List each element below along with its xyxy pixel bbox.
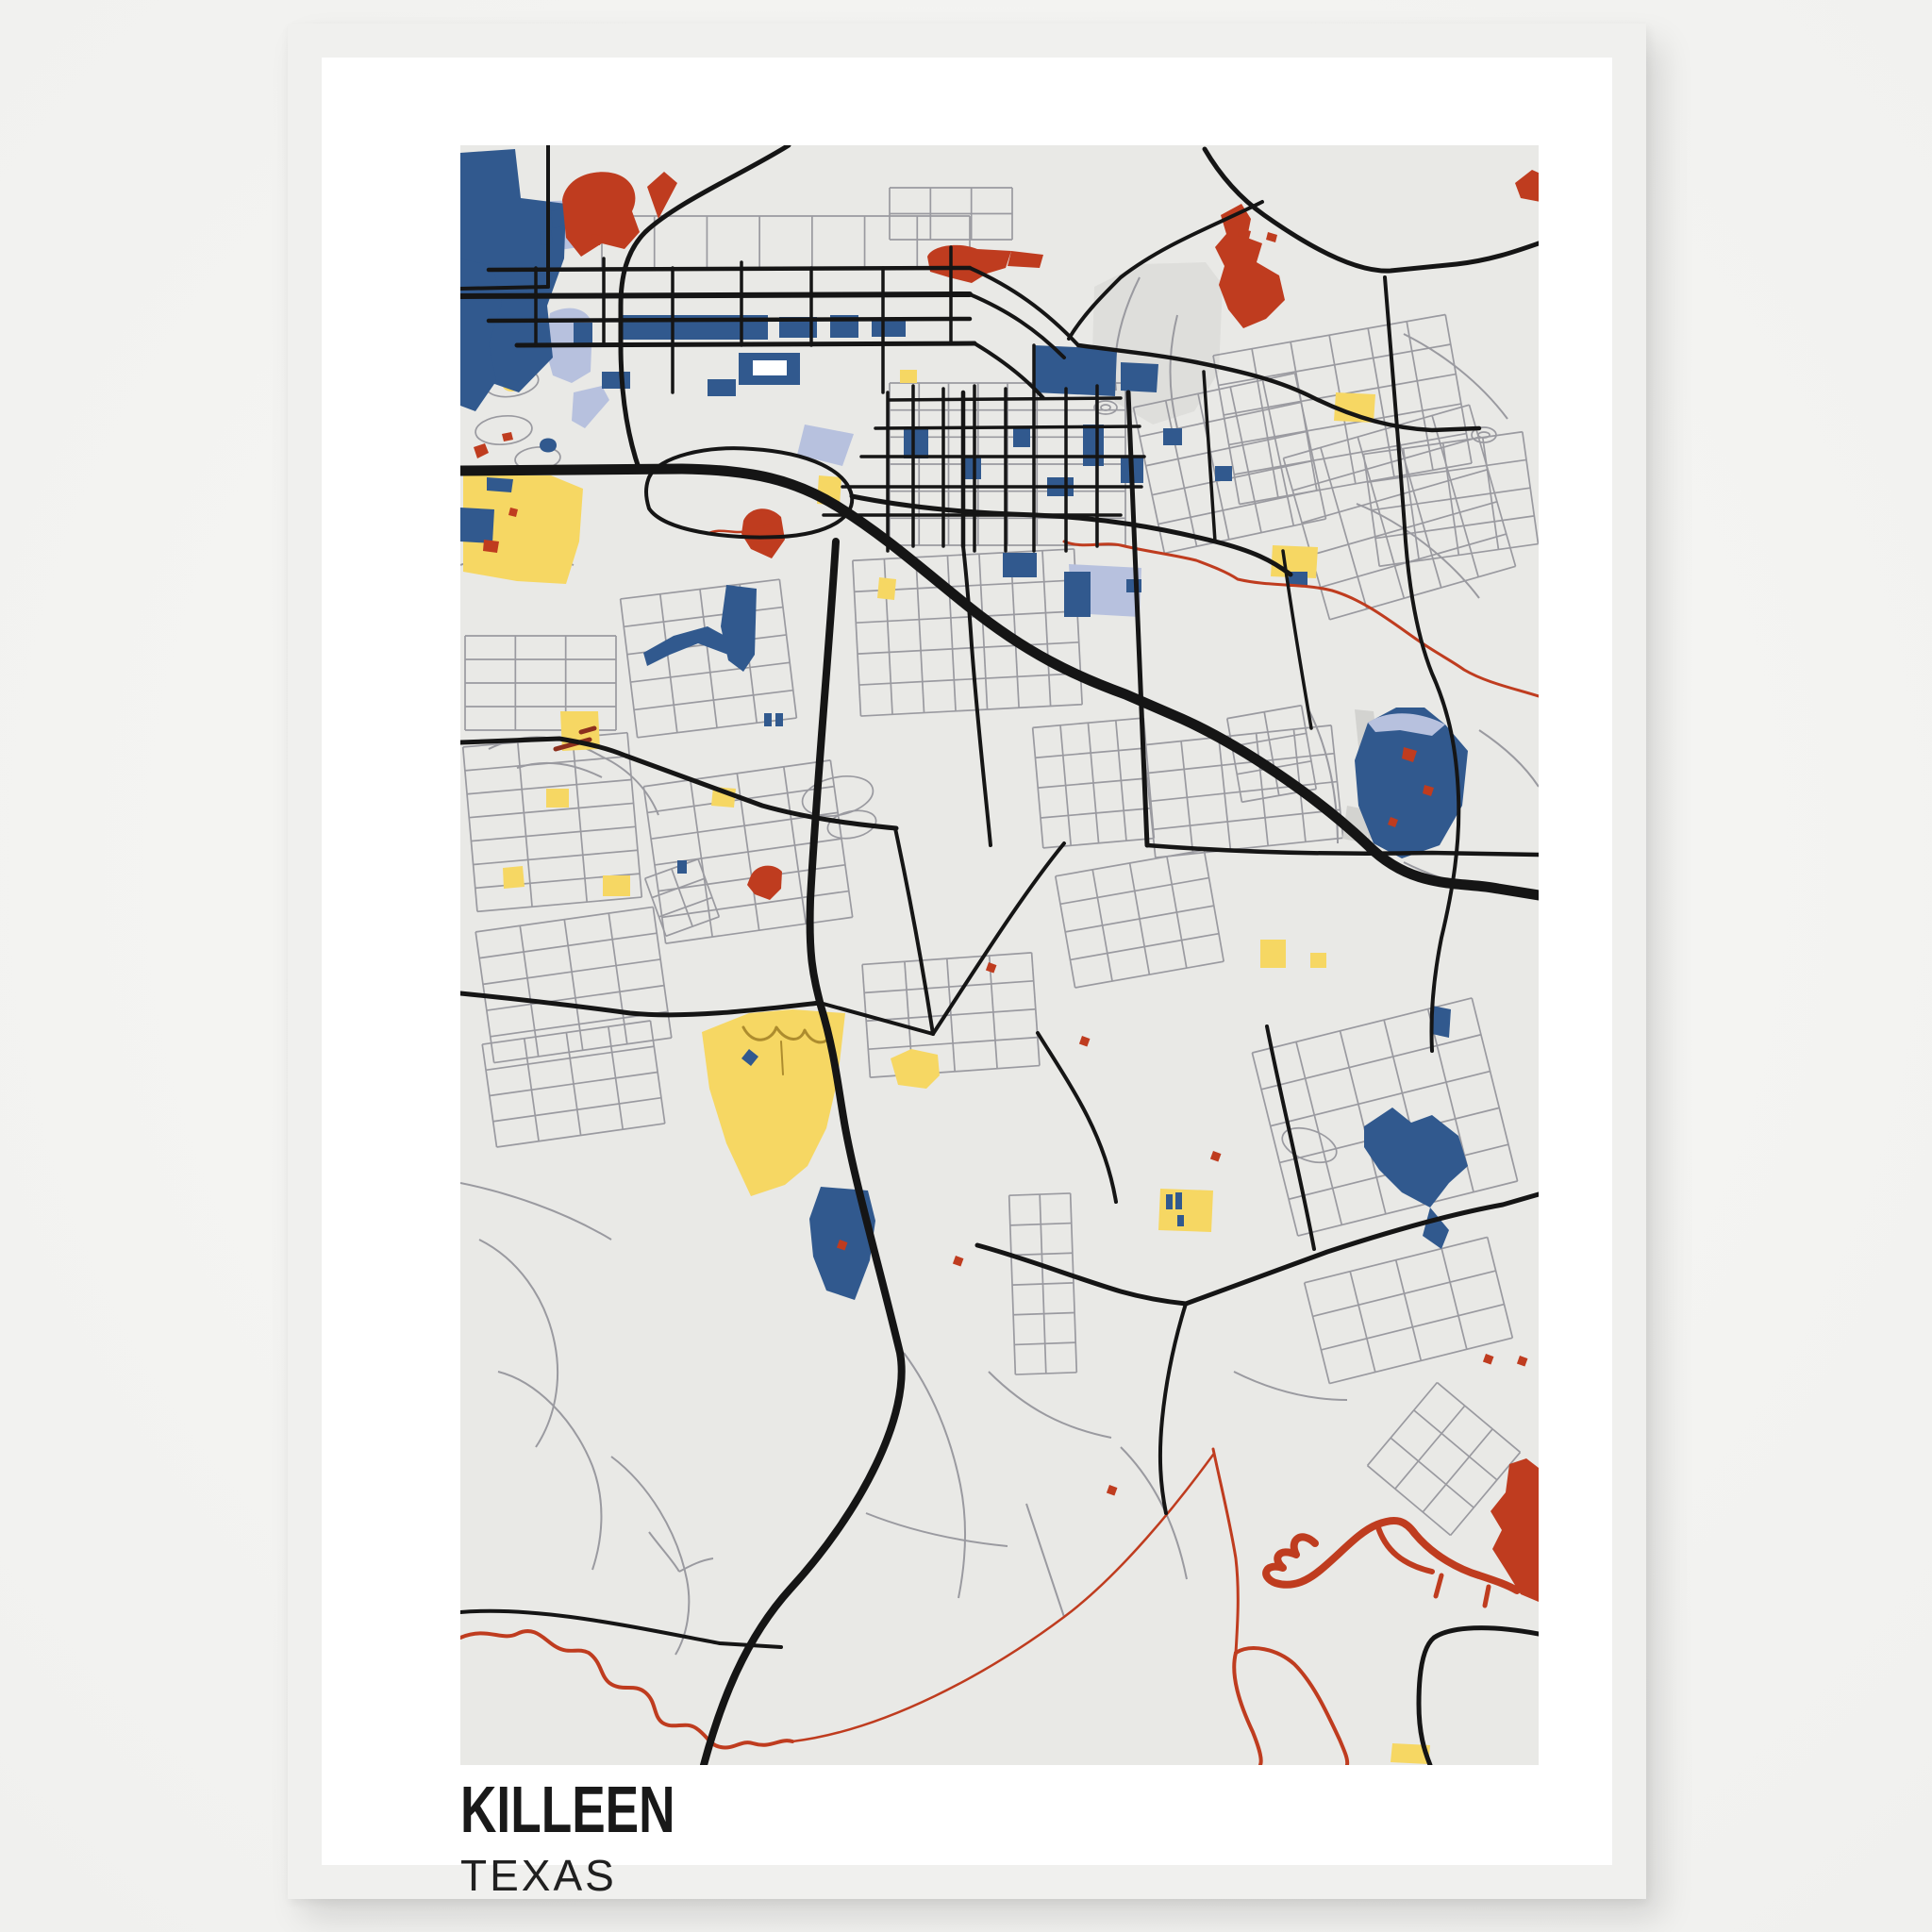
poster-photo-scene: KILLEEN TEXAS (0, 0, 1932, 1932)
title-block: KILLEEN TEXAS (460, 1776, 742, 1897)
poster-matte: KILLEEN TEXAS (322, 58, 1612, 1865)
city-map-svg (460, 145, 1539, 1765)
city-map (460, 145, 1539, 1765)
state-subtitle: TEXAS (460, 1854, 742, 1897)
city-title: KILLEEN (460, 1776, 675, 1842)
poster-frame: KILLEEN TEXAS (288, 24, 1646, 1899)
